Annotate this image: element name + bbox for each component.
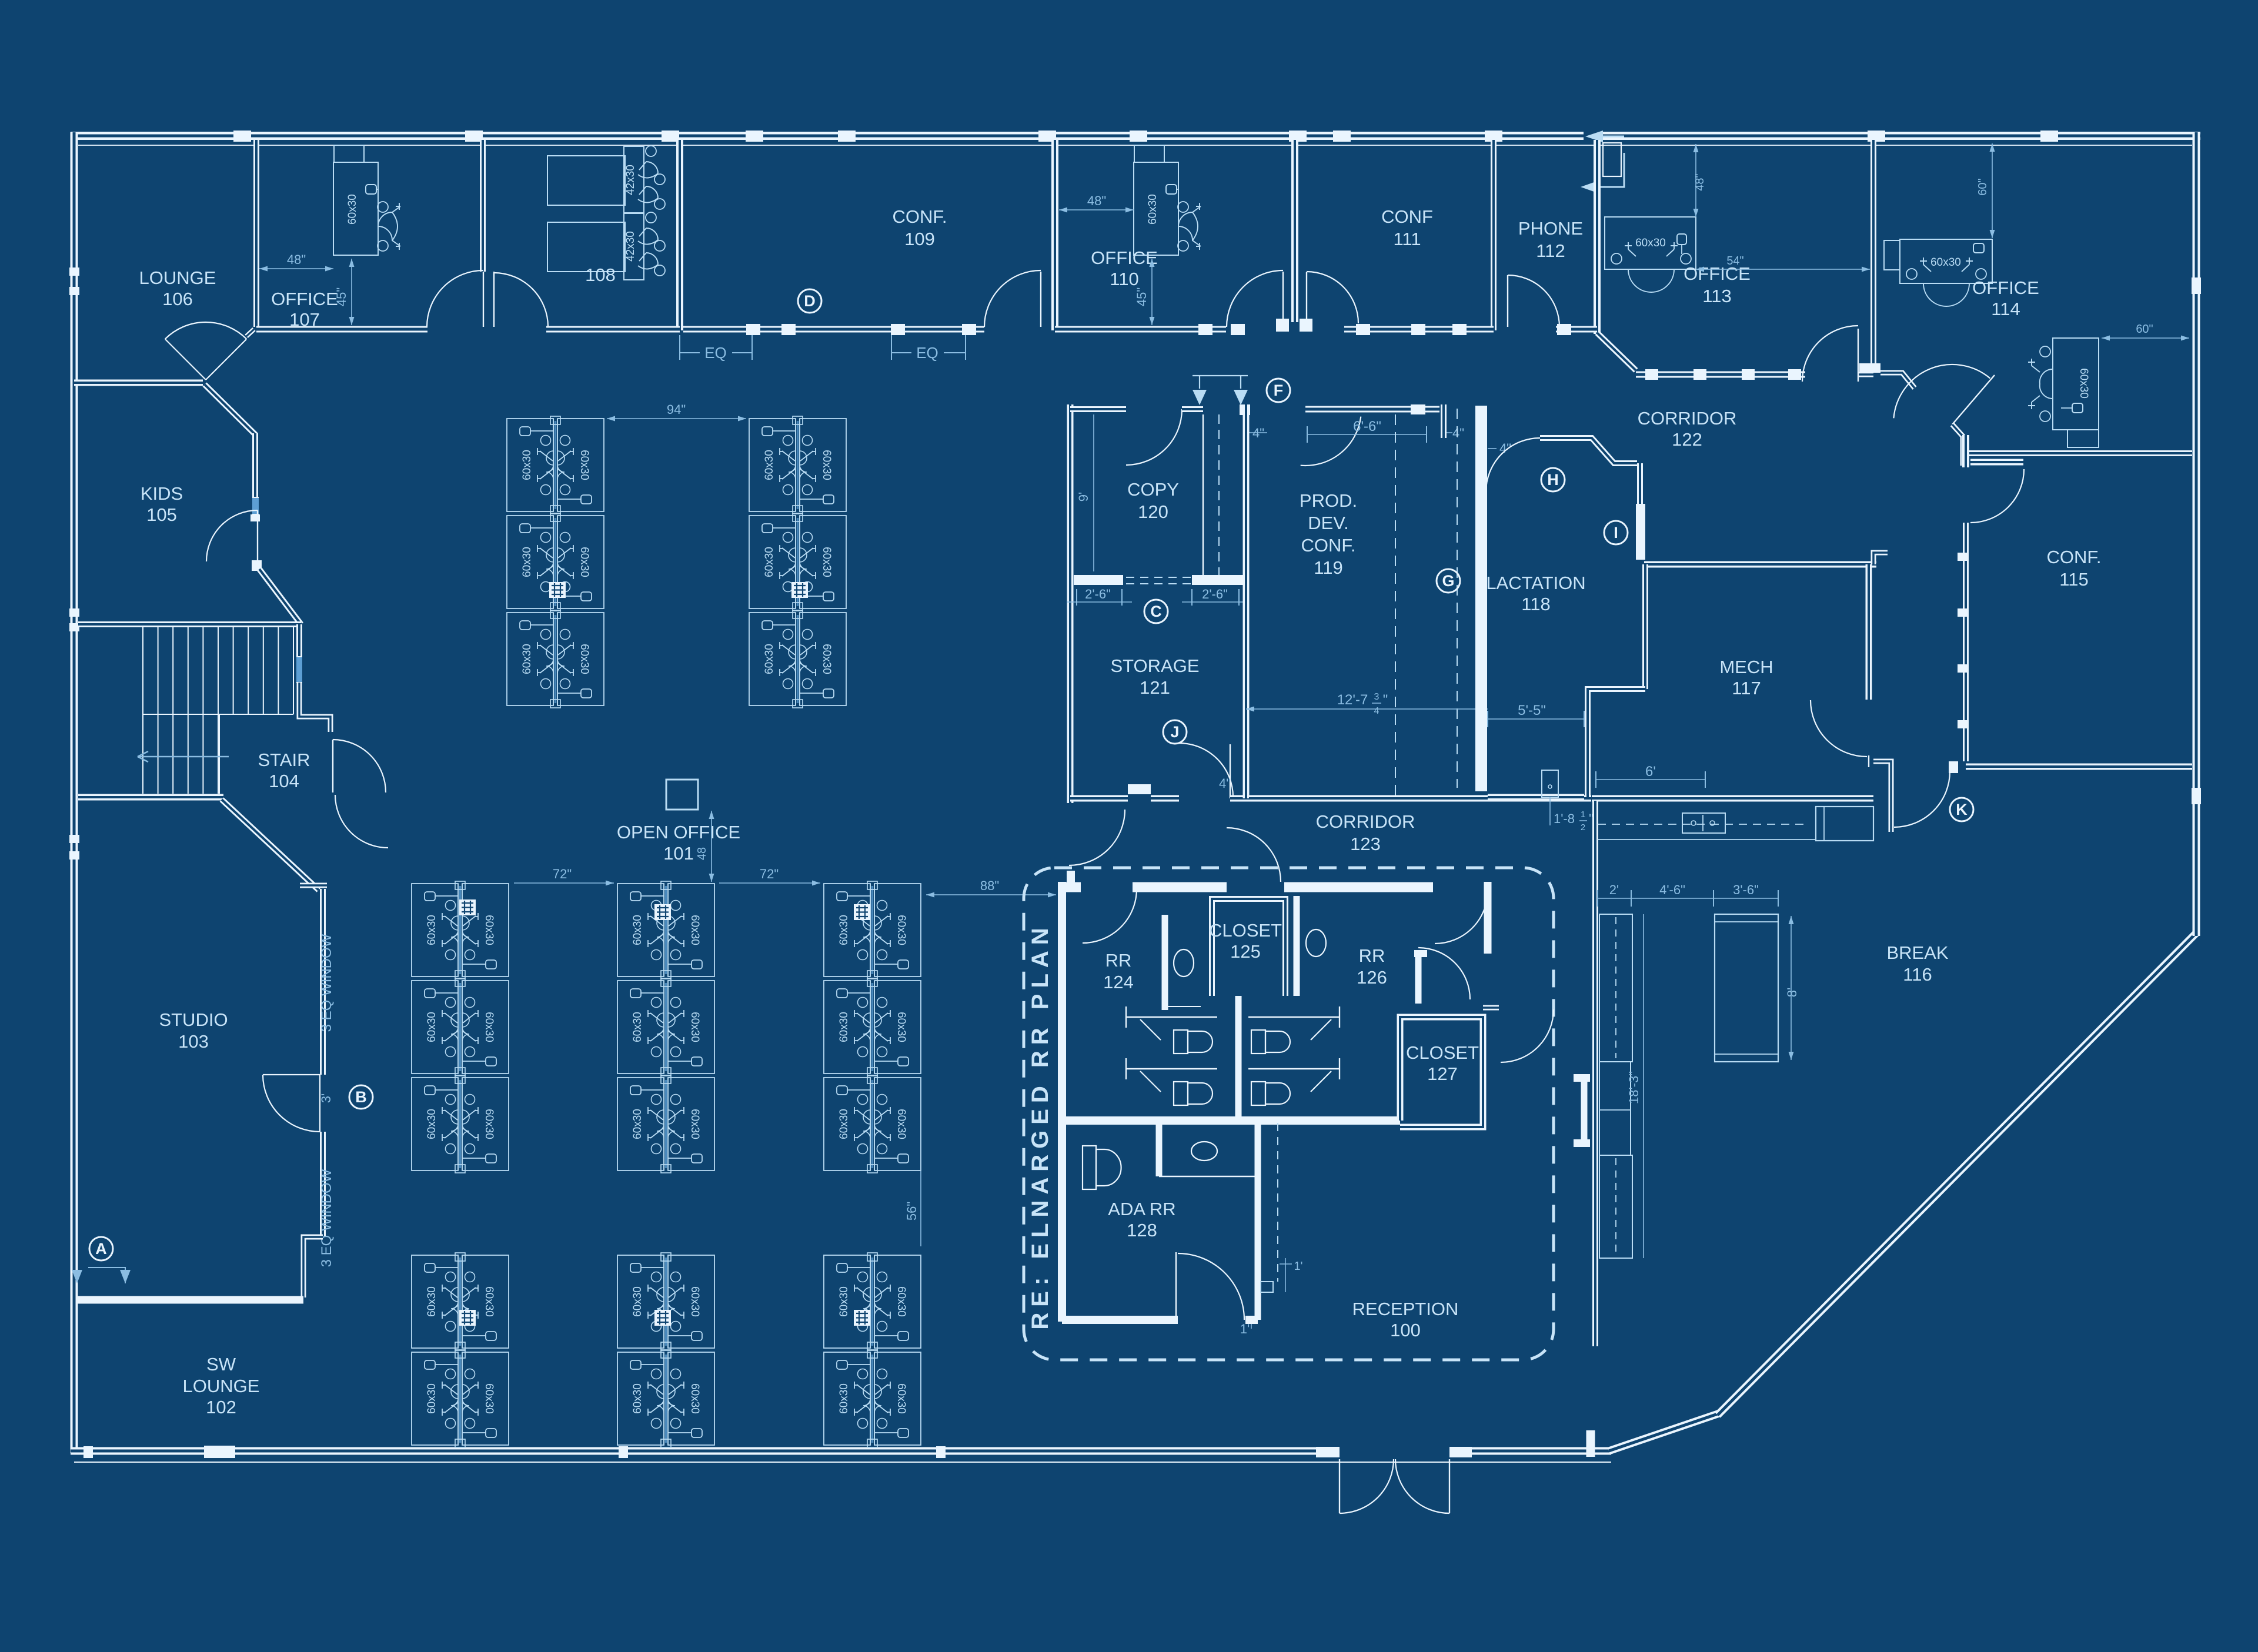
svg-text:3'-6": 3'-6": [1733, 882, 1759, 897]
svg-text:1': 1': [1294, 1260, 1303, 1273]
svg-text:4'-6": 4'-6": [1659, 882, 1685, 897]
svg-text:6'-6": 6'-6": [1353, 419, 1381, 434]
svg-text:OPEN OFFICE: OPEN OFFICE: [617, 822, 740, 842]
svg-text:110: 110: [1110, 269, 1138, 289]
svg-text:12'-7: 12'-7: [1337, 692, 1368, 708]
svg-text:CORRIDOR: CORRIDOR: [1316, 811, 1415, 832]
svg-text:RE: ELNARGED RR PLAN: RE: ELNARGED RR PLAN: [1027, 922, 1053, 1329]
svg-text:60x30: 60x30: [1930, 256, 1961, 269]
svg-text:COPY: COPY: [1127, 479, 1179, 500]
svg-text:STAIR: STAIR: [258, 750, 310, 770]
svg-text:SW: SW: [206, 1354, 236, 1375]
svg-text:EQ: EQ: [704, 344, 727, 362]
svg-text:18'-3": 18'-3": [1626, 1071, 1641, 1104]
svg-text:45": 45": [334, 287, 349, 306]
svg-text:72": 72": [760, 867, 779, 881]
svg-text:100: 100: [1390, 1320, 1421, 1340]
svg-text:4": 4": [1219, 776, 1231, 791]
svg-text:D: D: [804, 292, 816, 310]
svg-text:RECEPTION: RECEPTION: [1352, 1299, 1459, 1319]
svg-text:56": 56": [904, 1202, 919, 1220]
svg-text:124: 124: [1103, 972, 1134, 992]
svg-text:4: 4: [1374, 706, 1379, 716]
svg-text:48": 48": [287, 252, 306, 267]
svg-text:DEV.: DEV.: [1308, 513, 1349, 533]
svg-text:A: A: [95, 1240, 107, 1258]
svg-text:121: 121: [1140, 677, 1170, 698]
svg-text:1': 1': [1240, 1322, 1250, 1336]
svg-text:CORRIDOR: CORRIDOR: [1638, 408, 1737, 429]
svg-text:G: G: [1442, 572, 1454, 590]
svg-text:5'-5": 5'-5": [1518, 703, 1546, 718]
svg-text:60x30: 60x30: [2077, 368, 2090, 399]
svg-text:48: 48: [696, 847, 709, 860]
svg-text:CONF: CONF: [1381, 206, 1433, 227]
svg-text:OFFICE: OFFICE: [1972, 277, 2039, 298]
svg-text:I: I: [1614, 524, 1618, 541]
svg-text:105: 105: [146, 504, 177, 525]
svg-text:CONF.: CONF.: [893, 206, 947, 227]
svg-text:125: 125: [1230, 941, 1261, 962]
svg-text:60x30: 60x30: [1147, 194, 1159, 225]
svg-text:3 EQ WINDOW: 3 EQ WINDOW: [319, 934, 335, 1032]
svg-text:128: 128: [1127, 1220, 1157, 1240]
svg-text:BREAK: BREAK: [1886, 942, 1948, 963]
svg-text:122: 122: [1672, 429, 1702, 450]
svg-text:3: 3: [1374, 692, 1379, 702]
svg-text:60": 60": [1976, 178, 1989, 195]
svg-text:STORAGE: STORAGE: [1110, 656, 1199, 676]
svg-text:": ": [1383, 692, 1388, 708]
svg-text:RR: RR: [1359, 945, 1385, 966]
svg-text:126: 126: [1357, 967, 1387, 988]
svg-text:KIDS: KIDS: [141, 483, 183, 504]
svg-text:102: 102: [206, 1397, 236, 1417]
svg-text:60x30: 60x30: [346, 194, 359, 225]
svg-text:2'-6": 2'-6": [1202, 587, 1228, 601]
svg-text:103: 103: [178, 1031, 209, 1052]
svg-text:1: 1: [1581, 810, 1585, 820]
svg-text:54": 54": [1726, 255, 1743, 267]
svg-text:4": 4": [1499, 441, 1511, 456]
svg-text:C: C: [1150, 603, 1162, 620]
svg-text:94": 94": [667, 402, 686, 417]
svg-text:112: 112: [1536, 240, 1565, 261]
svg-text:3 EQ WINDOW: 3 EQ WINDOW: [319, 1169, 335, 1267]
svg-text:2'-6": 2'-6": [1085, 587, 1111, 601]
svg-text:STUDIO: STUDIO: [159, 1009, 228, 1030]
svg-text:72": 72": [553, 867, 572, 881]
svg-text:2: 2: [1581, 822, 1585, 832]
svg-text:CLOSET: CLOSET: [1406, 1042, 1479, 1063]
svg-text:8': 8': [1785, 988, 1799, 997]
svg-text:1'-8: 1'-8: [1554, 811, 1575, 826]
svg-text:48": 48": [1087, 193, 1106, 208]
svg-text:114: 114: [1991, 299, 2020, 319]
svg-text:127: 127: [1427, 1064, 1458, 1084]
svg-text:J: J: [1170, 723, 1179, 741]
svg-text:107: 107: [289, 309, 320, 330]
svg-text:3': 3': [319, 1093, 333, 1103]
svg-text:101: 101: [663, 843, 694, 864]
svg-text:EQ: EQ: [916, 344, 938, 362]
svg-text:118: 118: [1521, 594, 1550, 614]
svg-text:115: 115: [2059, 569, 2088, 590]
svg-text:H: H: [1547, 471, 1559, 489]
svg-text:OFFICE: OFFICE: [271, 289, 338, 309]
svg-text:6': 6': [1645, 764, 1656, 780]
svg-text:113: 113: [1702, 286, 1731, 306]
svg-text:OFFICE: OFFICE: [1091, 248, 1158, 268]
svg-text:45": 45": [1134, 287, 1149, 306]
svg-text:4": 4": [1452, 426, 1464, 440]
svg-text:PROD.: PROD.: [1300, 490, 1357, 511]
svg-text:CLOSET: CLOSET: [1209, 920, 1282, 941]
svg-text:116: 116: [1903, 964, 1932, 985]
svg-text:109: 109: [904, 229, 935, 249]
svg-text:117: 117: [1732, 678, 1761, 698]
svg-text:120: 120: [1138, 501, 1168, 522]
svg-text:LACTATION: LACTATION: [1486, 573, 1585, 593]
svg-text:ADA RR: ADA RR: [1108, 1199, 1175, 1219]
svg-text:123: 123: [1350, 834, 1381, 854]
svg-text:111: 111: [1393, 229, 1421, 249]
svg-text:LOUNGE: LOUNGE: [139, 267, 216, 288]
svg-text:MECH: MECH: [1719, 657, 1773, 677]
svg-text:48": 48": [1693, 173, 1706, 190]
svg-text:K: K: [1956, 801, 1968, 818]
svg-text:CONF.: CONF.: [2047, 547, 2102, 567]
svg-text:42x30: 42x30: [624, 231, 637, 262]
svg-text:60x30: 60x30: [1635, 237, 1666, 249]
svg-text:106: 106: [162, 289, 193, 309]
svg-text:PHONE: PHONE: [1518, 218, 1583, 239]
svg-text:119: 119: [1314, 557, 1342, 578]
svg-text:108: 108: [585, 265, 616, 285]
svg-text:104: 104: [269, 771, 299, 791]
svg-text:CONF.: CONF.: [1301, 535, 1356, 556]
svg-text:60": 60": [2136, 323, 2153, 336]
svg-text:LOUNGE: LOUNGE: [183, 1376, 260, 1396]
svg-text:F: F: [1274, 382, 1284, 399]
svg-text:RR: RR: [1105, 950, 1132, 971]
svg-text:9': 9': [1076, 492, 1091, 501]
svg-text:2': 2': [1609, 882, 1619, 897]
svg-text:42x30: 42x30: [624, 165, 637, 195]
svg-text:B: B: [355, 1088, 367, 1106]
svg-text:88": 88": [980, 878, 999, 893]
